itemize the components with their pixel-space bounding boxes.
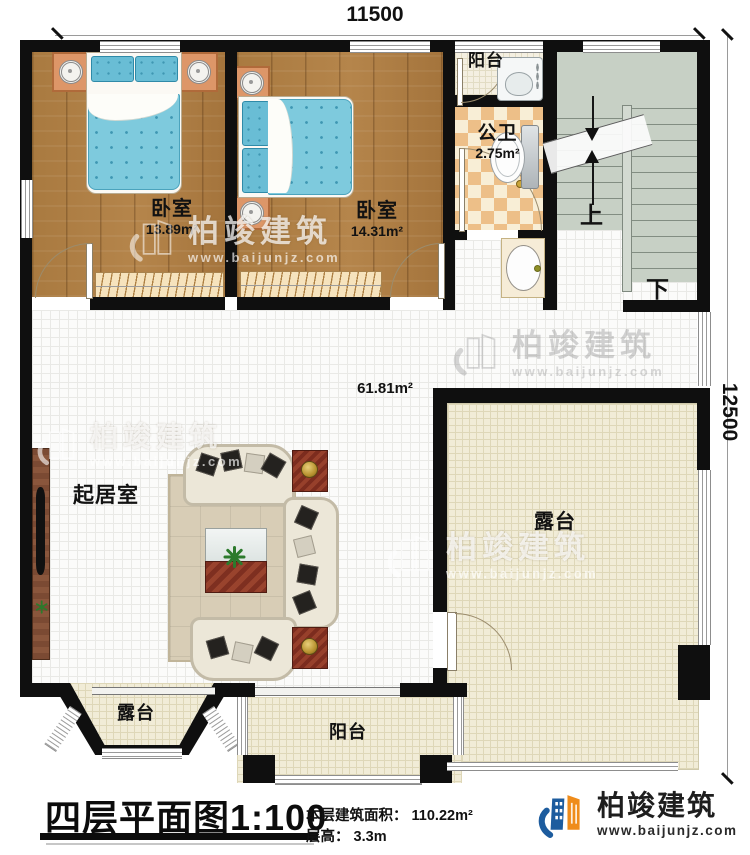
balcony-bottom-label: 阳台 bbox=[306, 723, 390, 742]
terrace-right-floor bbox=[447, 403, 699, 770]
plant-icon bbox=[223, 545, 247, 569]
brand-name: 柏竣建筑 bbox=[597, 792, 738, 820]
room-name: 露台 bbox=[505, 512, 605, 533]
wall-corner-block bbox=[678, 645, 710, 700]
wall bbox=[433, 388, 710, 403]
wall bbox=[225, 52, 237, 297]
nightstand bbox=[234, 66, 270, 100]
pillow bbox=[242, 148, 270, 193]
floor-plan: 11500 12500 bbox=[0, 0, 750, 855]
pillow bbox=[242, 101, 270, 146]
nightstand bbox=[234, 196, 270, 230]
room-area: 2.75m² bbox=[445, 145, 550, 161]
floor-height-label: 层高： bbox=[306, 829, 350, 845]
bay-window bbox=[102, 748, 182, 759]
balcony-window bbox=[453, 697, 464, 755]
floor-area-label: 本层建筑面积： bbox=[306, 808, 408, 824]
cushion bbox=[220, 449, 243, 472]
stairs-up-label: 上 bbox=[570, 203, 614, 227]
lamp-icon bbox=[187, 60, 211, 84]
pillow bbox=[135, 56, 178, 82]
arrow-down-icon bbox=[585, 128, 599, 141]
wall bbox=[237, 297, 390, 310]
room-name: 露台 bbox=[96, 704, 176, 723]
bay-opening bbox=[92, 687, 215, 695]
terrace-edge bbox=[447, 762, 678, 771]
floor-area-value: 110.22m² bbox=[412, 808, 473, 824]
washbasin bbox=[501, 238, 545, 298]
living-room-label: 起居室 bbox=[50, 485, 162, 507]
bedroom-right-label: 卧室 14.31m² bbox=[315, 201, 439, 239]
wardrobe bbox=[95, 272, 224, 299]
bay-window bbox=[44, 706, 81, 752]
window bbox=[21, 180, 33, 238]
sliding-door bbox=[255, 687, 400, 696]
tv bbox=[36, 487, 45, 575]
window bbox=[583, 41, 660, 53]
wall bbox=[697, 40, 710, 312]
bay-window bbox=[202, 706, 239, 752]
plant-icon bbox=[35, 600, 49, 614]
lamp-icon bbox=[240, 201, 264, 225]
terrace-right-label: 露台 bbox=[505, 512, 605, 533]
balcony-top-label: 阳台 bbox=[450, 52, 522, 70]
room-name: 公卫 bbox=[445, 124, 550, 144]
room-name: 卧室 bbox=[315, 201, 439, 222]
wall bbox=[433, 403, 447, 612]
room-name: 起居室 bbox=[50, 485, 162, 507]
title-underline-thin bbox=[46, 843, 314, 845]
brand-site: www.baijunjz.com bbox=[597, 823, 738, 838]
stairs-down-text: 下 bbox=[636, 277, 680, 301]
table-ornament bbox=[301, 638, 318, 655]
living-area-label: 61.81m² bbox=[330, 379, 440, 397]
bedroom-left-label: 卧室 13.89m² bbox=[112, 199, 232, 237]
wardrobe bbox=[240, 271, 382, 299]
bathroom-label: 公卫 2.75m² bbox=[445, 124, 550, 161]
nightstand bbox=[52, 52, 90, 92]
stair-direction-line bbox=[592, 96, 594, 130]
room-area: 14.31m² bbox=[315, 223, 439, 239]
plan-info: 本层建筑面积： 110.22m² 层高： 3.3m bbox=[306, 806, 473, 848]
balcony-pillar bbox=[243, 755, 275, 783]
lamp-icon bbox=[59, 60, 83, 84]
brand-logo-icon bbox=[538, 788, 590, 842]
stair-direction-line bbox=[592, 163, 594, 205]
room-area: 61.81m² bbox=[330, 380, 440, 397]
pillow bbox=[91, 56, 134, 82]
brand-logo: 柏竣建筑 www.baijunjz.com bbox=[538, 788, 738, 842]
room-name: 阳台 bbox=[450, 52, 522, 70]
dimension-top-value: 11500 bbox=[325, 3, 425, 27]
floor-height-row: 层高： 3.3m bbox=[306, 827, 473, 848]
dimension-line-top bbox=[55, 35, 700, 36]
floor-area-row: 本层建筑面积： 110.22m² bbox=[306, 806, 473, 827]
wall bbox=[90, 297, 225, 310]
cushion bbox=[296, 563, 318, 585]
balcony-window bbox=[237, 697, 248, 755]
wall bbox=[697, 403, 710, 470]
room-name: 阳台 bbox=[306, 723, 390, 742]
floor-height-value: 3.3m bbox=[354, 829, 387, 845]
table-ornament bbox=[301, 461, 318, 478]
title-underline bbox=[40, 833, 318, 840]
room-area: 13.89m² bbox=[112, 221, 232, 237]
balcony-window bbox=[275, 775, 422, 785]
cushion bbox=[244, 453, 265, 474]
hall-floor bbox=[32, 310, 697, 388]
nightstand bbox=[180, 52, 218, 92]
cushion bbox=[231, 641, 254, 664]
stair-landing-floor bbox=[557, 230, 623, 310]
dimension-tick bbox=[51, 27, 63, 39]
dimension-tick bbox=[693, 27, 705, 39]
terrace-bottom-left-label: 露台 bbox=[96, 704, 176, 723]
window bbox=[350, 41, 430, 53]
wall bbox=[400, 683, 467, 697]
plan-title-text: 四层平面图 bbox=[45, 797, 230, 838]
dimension-right-value: 12500 bbox=[717, 382, 741, 442]
wall bbox=[543, 40, 557, 310]
window bbox=[100, 41, 180, 53]
stairs-up-text: 上 bbox=[570, 203, 614, 227]
arrow-up-icon bbox=[585, 150, 599, 163]
wall bbox=[20, 40, 32, 697]
lamp-icon bbox=[240, 71, 264, 95]
window bbox=[698, 312, 711, 386]
stairs-down-label: 下 bbox=[636, 277, 680, 301]
room-name: 卧室 bbox=[112, 199, 232, 220]
brand-text: 柏竣建筑 www.baijunjz.com bbox=[597, 792, 738, 838]
terrace-railing bbox=[698, 470, 711, 645]
